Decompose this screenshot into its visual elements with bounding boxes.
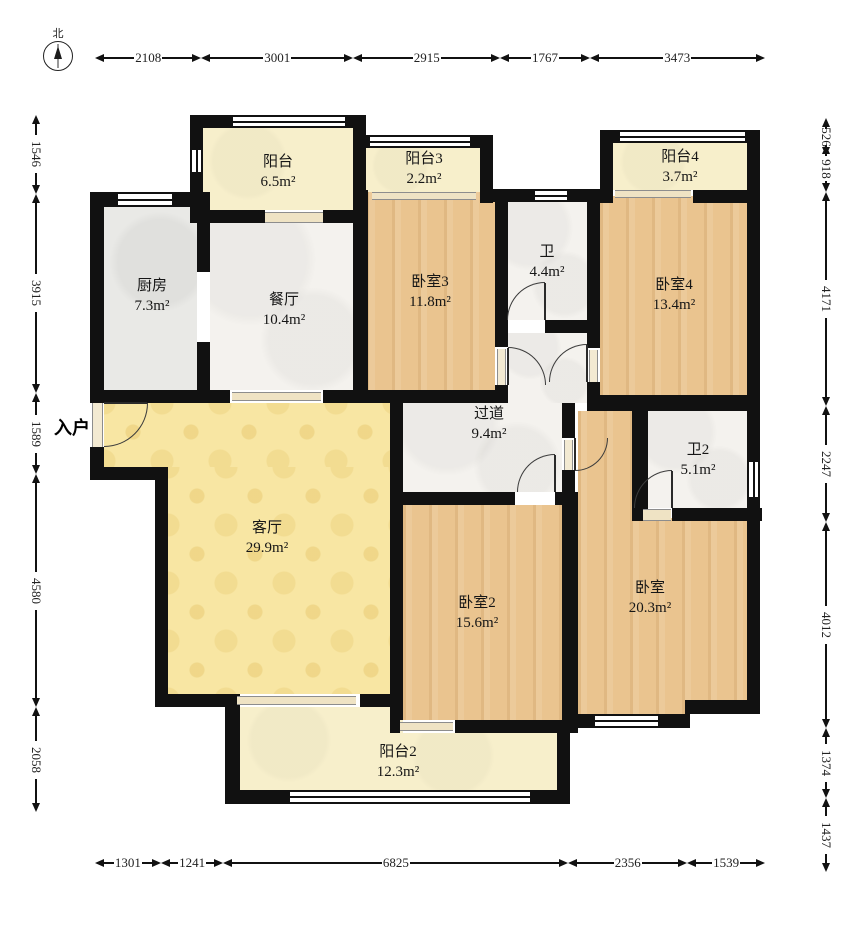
dim-line xyxy=(291,57,344,59)
dim-line xyxy=(35,312,37,384)
dim-line xyxy=(410,862,559,864)
dim-line xyxy=(825,807,827,816)
dim-arrow xyxy=(32,185,40,194)
dim-line xyxy=(35,716,37,740)
dim-segment-right: 526 xyxy=(818,118,834,145)
dim-line xyxy=(170,862,178,864)
dim-segment-right: 4012 xyxy=(818,522,834,728)
dim-line xyxy=(559,57,581,59)
dim-value: 3473 xyxy=(663,50,691,66)
dim-arrow xyxy=(822,192,830,201)
dim-value: 2108 xyxy=(134,50,162,66)
dim-value: 3001 xyxy=(263,50,291,66)
dim-arrow xyxy=(223,859,232,867)
dim-arrow xyxy=(32,474,40,483)
dim-arrow xyxy=(568,859,577,867)
dim-line xyxy=(825,737,827,744)
dim-segment-left: 1589 xyxy=(28,393,44,474)
dim-line xyxy=(691,57,756,59)
dim-value: 1546 xyxy=(28,135,44,173)
dim-arrow xyxy=(32,194,40,203)
dim-segment-left: 3915 xyxy=(28,194,44,393)
dim-line xyxy=(162,57,192,59)
dim-arrow xyxy=(822,522,830,531)
dim-line xyxy=(740,862,756,864)
dim-segment-top: 1767 xyxy=(500,50,589,66)
dim-line xyxy=(362,57,413,59)
dim-value: 6825 xyxy=(382,855,410,871)
dim-line xyxy=(206,862,214,864)
dim-arrow xyxy=(756,54,765,62)
dim-arrow xyxy=(678,859,687,867)
dim-value: 2915 xyxy=(413,50,441,66)
dim-value: 1374 xyxy=(818,744,834,782)
dim-segment-right: 4171 xyxy=(818,192,834,406)
dim-value: 1589 xyxy=(28,415,44,453)
dim-line xyxy=(142,862,152,864)
dim-segment-bottom: 1241 xyxy=(161,855,224,871)
dim-line xyxy=(35,483,37,572)
dim-arrow xyxy=(822,145,830,154)
dim-line xyxy=(104,862,114,864)
dim-segment-right: 918 xyxy=(818,145,834,192)
dim-segment-left: 2058 xyxy=(28,707,44,812)
dim-segment-bottom: 6825 xyxy=(223,855,568,871)
dim-arrow xyxy=(32,803,40,812)
dim-line xyxy=(825,415,827,445)
dim-line xyxy=(642,862,679,864)
dim-arrow xyxy=(152,859,161,867)
dim-value: 4171 xyxy=(818,280,834,318)
dim-arrow xyxy=(32,698,40,707)
dim-line xyxy=(210,57,263,59)
dim-segment-top: 2108 xyxy=(95,50,201,66)
dim-arrow xyxy=(822,397,830,406)
dim-arrow xyxy=(822,798,830,807)
dim-line xyxy=(35,203,37,275)
dim-arrow xyxy=(32,115,40,124)
dim-value: 1301 xyxy=(114,855,142,871)
dim-arrow xyxy=(500,54,509,62)
dim-arrow xyxy=(201,54,210,62)
dim-arrow xyxy=(687,859,696,867)
dim-line xyxy=(825,854,827,863)
floorplan-canvas: 北 入户 阳台6.5m²阳台32.2m²阳台43.7m²厨房7.3m²餐厅10.… xyxy=(0,0,863,927)
dim-arrow xyxy=(214,859,223,867)
dim-line xyxy=(35,610,37,699)
dim-line xyxy=(35,779,37,803)
dim-line xyxy=(35,453,37,465)
dim-segment-bottom: 1301 xyxy=(95,855,161,871)
dim-line xyxy=(577,862,614,864)
dim-arrow xyxy=(822,719,830,728)
dim-arrow xyxy=(559,859,568,867)
dim-arrow xyxy=(581,54,590,62)
dim-arrow xyxy=(822,513,830,522)
dim-arrow xyxy=(822,863,830,872)
dim-segment-right: 2247 xyxy=(818,406,834,521)
dim-arrow xyxy=(32,393,40,402)
dim-line xyxy=(599,57,664,59)
dim-arrow xyxy=(590,54,599,62)
dim-line xyxy=(441,57,492,59)
dim-arrow xyxy=(95,859,104,867)
dim-arrow xyxy=(822,789,830,798)
dim-arrow xyxy=(822,183,830,192)
dim-value: 526 xyxy=(818,129,834,145)
dim-arrow xyxy=(344,54,353,62)
dim-arrow xyxy=(491,54,500,62)
dim-value: 2058 xyxy=(28,741,44,779)
dimension-lines: 2108300129151767347313011241682523561539… xyxy=(0,0,863,927)
dim-arrow xyxy=(822,728,830,737)
dim-segment-right: 1374 xyxy=(818,728,834,799)
dim-arrow xyxy=(95,54,104,62)
dim-segment-bottom: 1539 xyxy=(687,855,765,871)
dim-arrow xyxy=(822,406,830,415)
dim-value: 2356 xyxy=(614,855,642,871)
dim-value: 4012 xyxy=(818,606,834,644)
dim-segment-right: 1437 xyxy=(818,798,834,872)
dim-line xyxy=(825,318,827,397)
dim-line xyxy=(825,531,827,606)
dim-line xyxy=(35,402,37,414)
dim-value: 4580 xyxy=(28,572,44,610)
dim-segment-top: 2915 xyxy=(353,50,500,66)
dim-value: 1241 xyxy=(178,855,206,871)
dim-value: 1539 xyxy=(712,855,740,871)
dim-line xyxy=(35,173,37,184)
dim-segment-left: 4580 xyxy=(28,474,44,707)
dim-line xyxy=(696,862,712,864)
dim-arrow xyxy=(32,384,40,393)
dim-value: 3915 xyxy=(28,274,44,312)
dim-arrow xyxy=(192,54,201,62)
dim-arrow xyxy=(353,54,362,62)
dim-segment-top: 3473 xyxy=(590,50,765,66)
dim-line xyxy=(104,57,134,59)
dim-arrow xyxy=(32,707,40,716)
dim-arrow xyxy=(756,859,765,867)
dim-line xyxy=(825,483,827,513)
dim-line xyxy=(825,644,827,719)
dim-segment-left: 1546 xyxy=(28,115,44,194)
dim-value: 918 xyxy=(818,156,834,181)
dim-arrow xyxy=(822,118,830,127)
dim-value: 2247 xyxy=(818,445,834,483)
dim-line xyxy=(825,201,827,280)
dim-value: 1767 xyxy=(531,50,559,66)
dim-segment-top: 3001 xyxy=(201,50,353,66)
dim-line xyxy=(35,124,37,135)
dim-segment-bottom: 2356 xyxy=(568,855,687,871)
dim-value: 1437 xyxy=(818,816,834,854)
dim-arrow xyxy=(161,859,170,867)
dim-line xyxy=(825,782,827,789)
dim-line xyxy=(232,862,381,864)
dim-arrow xyxy=(32,465,40,474)
dim-line xyxy=(509,57,531,59)
